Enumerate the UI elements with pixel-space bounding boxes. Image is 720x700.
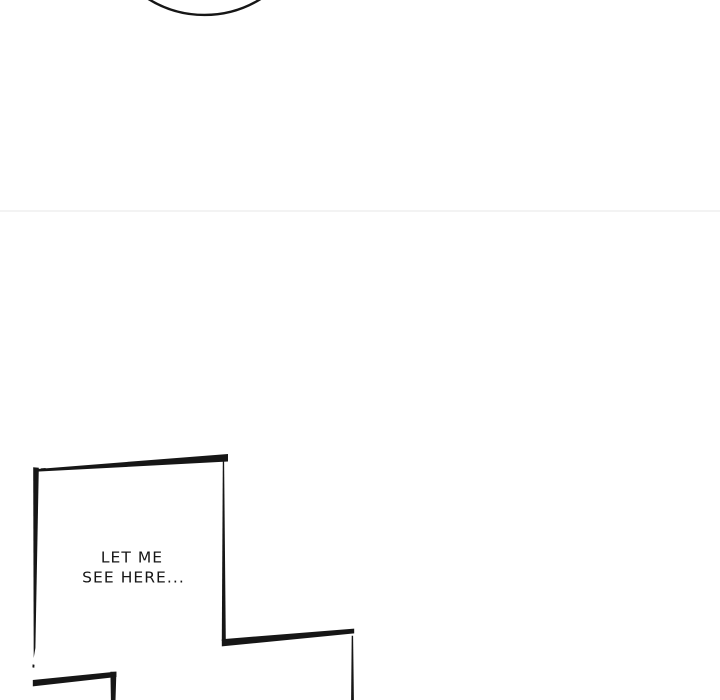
comic-artwork: LET ME SEE HERE... <box>0 0 720 700</box>
dialogue-text-line-1: LET ME <box>101 549 163 567</box>
webtoon-page: LET ME SEE HERE... <box>0 0 720 700</box>
bottom-panel-right-border <box>110 672 116 700</box>
ink-speck-bottom-left <box>32 664 34 667</box>
page-seam-line <box>0 210 720 212</box>
speech-panel-left-border <box>33 467 39 658</box>
speech-panel-right-border <box>222 460 226 641</box>
dialogue-text-line-2: SEE HERE... <box>82 569 185 587</box>
speech-panel-bottom-border <box>222 629 354 647</box>
bottom-panel-top-border <box>33 672 117 687</box>
speech-panel-top-border <box>35 454 229 472</box>
gutter-right-vertical-line <box>351 636 354 700</box>
speech-bubble-bottom-arc <box>147 0 262 15</box>
